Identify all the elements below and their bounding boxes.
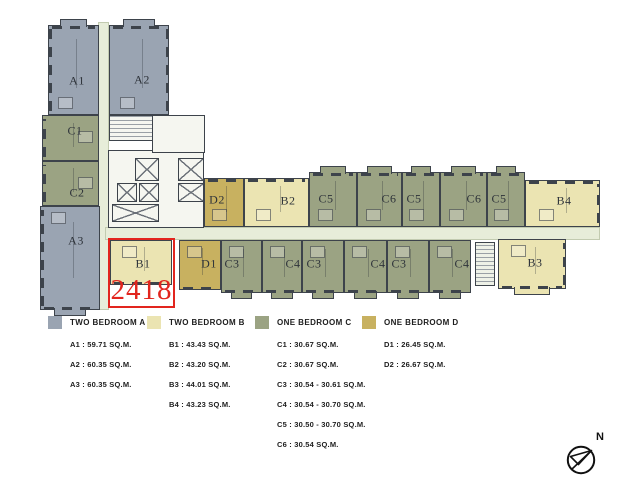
window-band [563,243,566,285]
window-band [406,173,436,176]
legend-group-two-bedroom-b: TWO BEDROOM BB1 : 43.43 SQ.M.B2 : 43.20 … [147,316,245,329]
unit-label: A3 [68,234,84,249]
window-band [41,210,44,306]
unit-label: C6 [381,192,396,207]
legend-item: B1 : 43.43 SQ.M. [169,340,231,349]
window-band [597,184,600,223]
legend-item: D1 : 26.45 SQ.M. [384,340,446,349]
legend-item: B3 : 44.01 SQ.M. [169,380,231,389]
legend-header: ONE BEDROOM C [255,316,352,329]
window-band [248,179,305,182]
unit-number: 2418 [111,276,173,305]
legend-item: B4 : 43.23 SQ.M. [169,400,231,409]
window-band [391,290,425,293]
window-band [433,290,467,293]
legend-swatch [48,316,62,329]
legend-group-name: ONE BEDROOM D [384,318,459,327]
legend-swatch [255,316,269,329]
window-band [529,181,596,184]
legend-item: C6 : 30.54 SQ.M. [277,440,339,449]
legend-header: TWO BEDROOM A [48,316,146,329]
window-band [444,173,483,176]
unit-label: C6 [466,192,481,207]
unit-label: C1 [67,124,82,139]
window-band [361,173,398,176]
legend-item: C3 : 30.54 - 30.61 SQ.M. [277,380,366,389]
window-band [491,173,521,176]
unit-label: C2 [69,186,84,201]
legend-group-one-bedroom-d: ONE BEDROOM DD1 : 26.45 SQ.M.D2 : 26.67 … [362,316,459,329]
window-band [266,290,298,293]
legend: TWO BEDROOM AA1 : 59.71 SQ.M.A2 : 60.35 … [0,0,640,480]
unit-label: D2 [209,193,225,208]
highlighted-unit-box: 2418 [108,238,175,308]
unit-label: A2 [134,73,150,88]
window-band [44,307,96,310]
unit-label: C5 [318,192,333,207]
unit-label: B3 [527,256,542,271]
window-band [166,29,169,111]
unit-label: C4 [285,257,300,272]
legend-header: TWO BEDROOM B [147,316,245,329]
unit-label: C5 [491,192,506,207]
unit-label: C3 [306,257,321,272]
unit-label: D1 [201,257,217,272]
unit-label: C4 [454,257,469,272]
unit-label: C3 [391,257,406,272]
legend-item: B2 : 43.20 SQ.M. [169,360,231,369]
legend-swatch [362,316,376,329]
legend-item: C1 : 30.67 SQ.M. [277,340,339,349]
legend-item: C5 : 30.50 - 30.70 SQ.M. [277,420,366,429]
legend-header: ONE BEDROOM D [362,316,459,329]
window-band [225,290,258,293]
compass-north-label: N [596,431,604,443]
window-band [502,286,562,289]
window-band [306,290,340,293]
legend-item: A2 : 60.35 SQ.M. [70,360,132,369]
legend-group-name: TWO BEDROOM A [70,318,146,327]
unit-label: B4 [556,194,571,209]
window-band [348,290,383,293]
unit-label: B2 [280,194,295,209]
legend-item: A3 : 60.35 SQ.M. [70,380,132,389]
unit-label: A1 [69,74,85,89]
floorplan-page: A1A2C1C2A3D2B2C5C6C5C6C5B4B1D1C3C4C3C4C3… [0,0,640,480]
north-arrow-icon [566,442,600,476]
window-band [43,119,46,157]
window-band [208,179,240,182]
legend-group-one-bedroom-c: ONE BEDROOM CC1 : 30.67 SQ.M.C2 : 30.67 … [255,316,352,329]
unit-label: C4 [370,257,385,272]
legend-item: C4 : 30.54 - 30.70 SQ.M. [277,400,366,409]
legend-item: A1 : 59.71 SQ.M. [70,340,132,349]
legend-swatch [147,316,161,329]
window-band [49,29,52,111]
legend-item: C2 : 30.67 SQ.M. [277,360,339,369]
window-band [43,165,46,202]
legend-group-name: TWO BEDROOM B [169,318,245,327]
legend-group-name: ONE BEDROOM C [277,318,352,327]
unit-label: C5 [406,192,421,207]
legend-item: D2 : 26.67 SQ.M. [384,360,446,369]
unit-label: C3 [224,257,239,272]
window-band [183,287,217,290]
window-band [52,26,95,29]
window-band [113,26,165,29]
legend-group-two-bedroom-a: TWO BEDROOM AA1 : 59.71 SQ.M.A2 : 60.35 … [48,316,146,329]
window-band [313,173,353,176]
compass: N [564,431,620,479]
